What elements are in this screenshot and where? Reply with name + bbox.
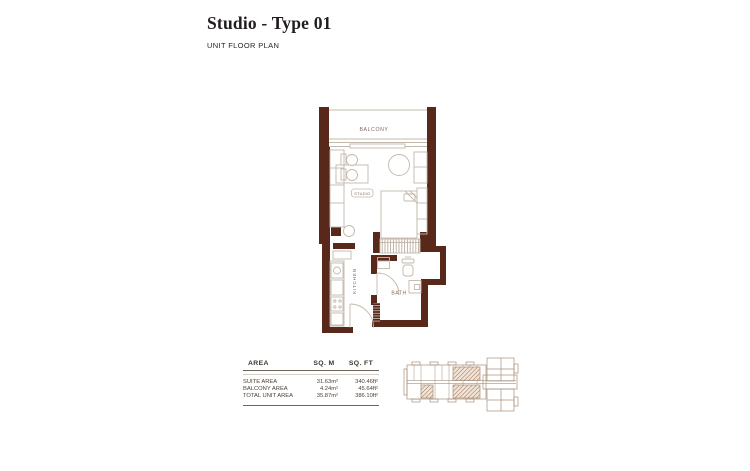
table-rule-strong [243, 370, 379, 371]
entry-door [350, 304, 374, 328]
row-sqm: 4.24m² [305, 386, 343, 393]
table-row-balcony: BALCONY AREA 4.24m² 45.64ft² [243, 386, 379, 393]
row-sqft: 45.64ft² [343, 386, 379, 393]
row-sqm: 31.63m² [305, 379, 343, 386]
unit-floor-plan-page: Studio - Type 01 UNIT FLOOR PLAN [0, 0, 750, 471]
key-plan [402, 348, 520, 418]
row-label: BALCONY AREA [243, 386, 305, 393]
row-sqft: 386.10ft² [343, 393, 379, 400]
table-rule-bottom [243, 405, 379, 406]
col-header-sqm: SQ. M [305, 360, 343, 367]
row-label: TOTAL UNIT AREA [243, 393, 305, 400]
row-sqft: 340.46ft² [343, 379, 379, 386]
shower [409, 281, 421, 294]
wardrobe [380, 239, 420, 253]
studio-label: STUDIO [354, 192, 370, 196]
bed [381, 191, 417, 238]
page-subtitle: UNIT FLOOR PLAN [207, 41, 279, 50]
kitchen-counter [330, 251, 351, 326]
bath-sliding-door [373, 303, 380, 323]
row-label: SUITE AREA [243, 379, 305, 386]
bath-label: BATH [391, 291, 406, 297]
balcony-label: BALCONY [360, 127, 389, 133]
area-table: AREA SQ. M SQ. FT SUITE AREA 31.63m² 340… [243, 358, 379, 406]
area-table-header: AREA SQ. M SQ. FT [243, 358, 379, 367]
studio-label-box: STUDIO [352, 189, 374, 197]
dining-set [336, 154, 368, 183]
row-sqm: 35.87m² [305, 393, 343, 400]
table-rule-light [243, 374, 379, 375]
col-header-sqft: SQ. FT [343, 360, 379, 367]
toilet [402, 257, 414, 276]
col-header-area: AREA [243, 360, 305, 367]
keyplan-tower-core [483, 358, 518, 411]
round-table [389, 155, 410, 176]
floor-plan-drawing: BALCONY STUDIO KITCHEN BATH [300, 100, 460, 340]
keyplan-highlighted-units [421, 367, 480, 398]
table-row-total: TOTAL UNIT AREA 35.87m² 386.10ft² [243, 393, 379, 400]
table-row-suite: SUITE AREA 31.63m² 340.46ft² [243, 379, 379, 386]
cabinet-right-strip [417, 188, 427, 234]
cabinet-top-right [414, 152, 427, 183]
kitchen-label: KITCHEN [352, 268, 357, 294]
page-title: Studio - Type 01 [207, 13, 332, 34]
